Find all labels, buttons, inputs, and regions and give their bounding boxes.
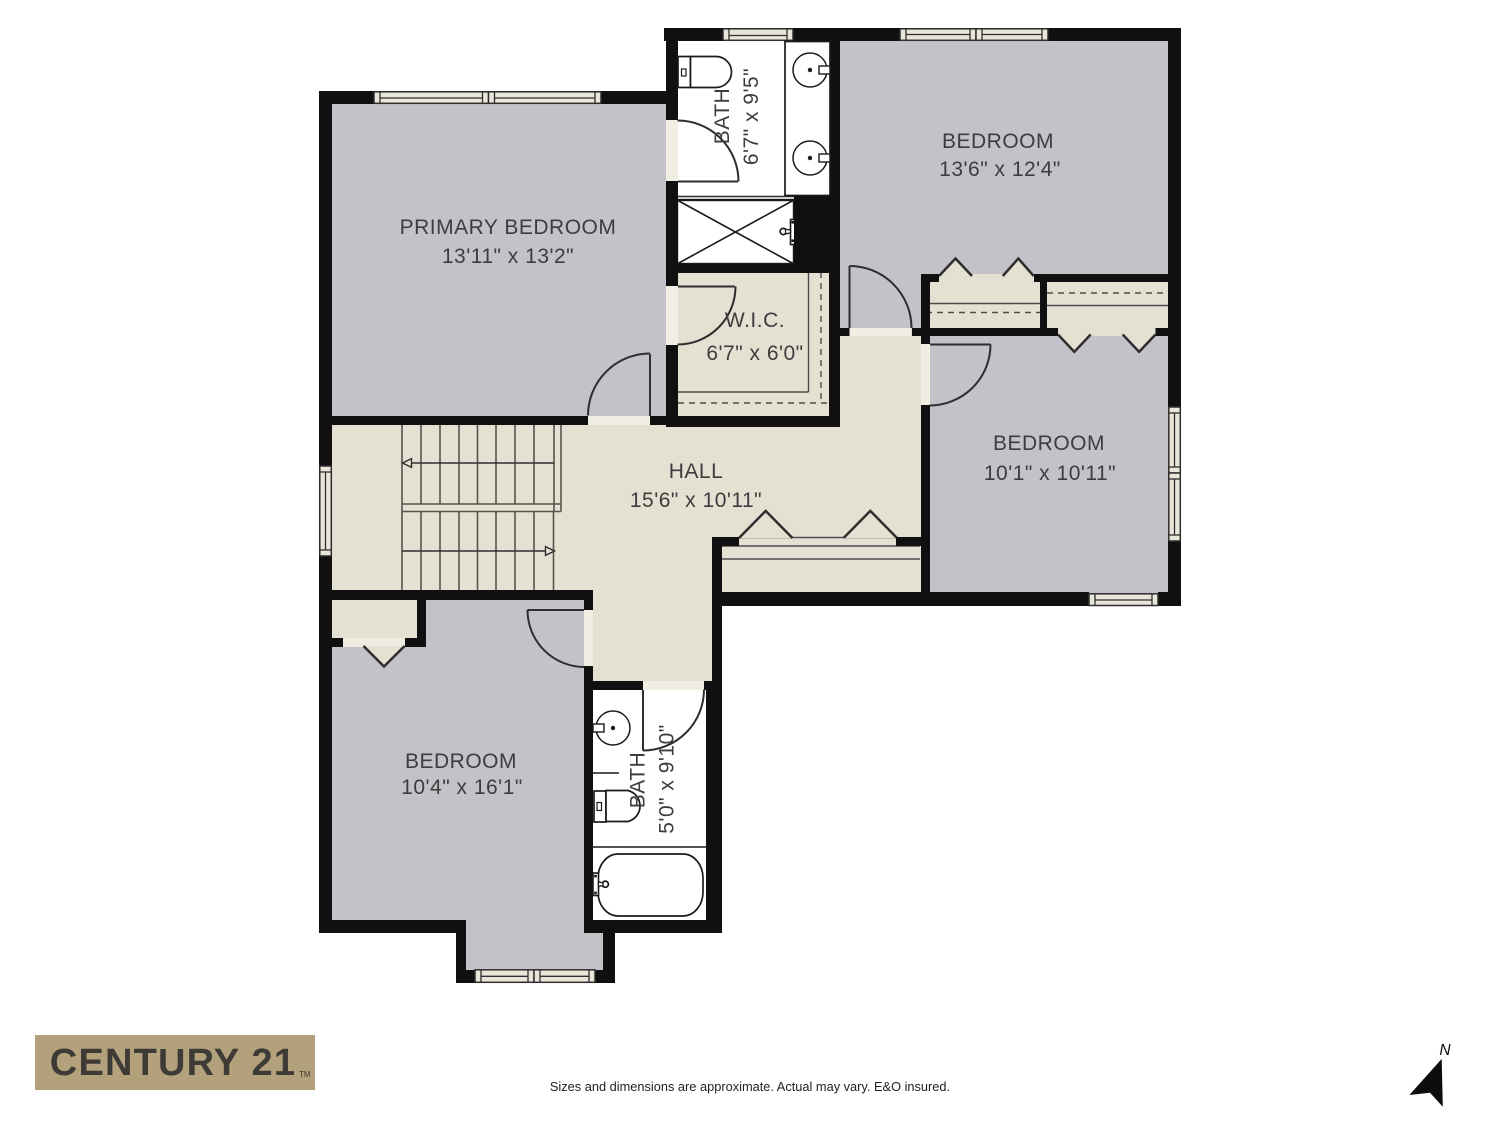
svg-text:10'1" x 10'11": 10'1" x 10'11": [984, 462, 1116, 485]
svg-text:13'6" x 12'4": 13'6" x 12'4": [939, 158, 1061, 181]
svg-text:CENTURY 21: CENTURY 21: [50, 1042, 296, 1084]
svg-text:10'4" x 16'1": 10'4" x 16'1": [401, 776, 523, 799]
svg-text:BATH: BATH: [711, 88, 734, 144]
svg-text:BATH: BATH: [627, 752, 650, 808]
svg-text:BEDROOM: BEDROOM: [942, 130, 1054, 153]
svg-text:6'7" x 9'5": 6'7" x 9'5": [740, 68, 763, 165]
svg-text:HALL: HALL: [669, 460, 724, 483]
svg-text:W.I.C.: W.I.C.: [725, 309, 785, 332]
svg-text:6'7" x 6'0": 6'7" x 6'0": [706, 342, 803, 365]
svg-text:5'0" x 9'10": 5'0" x 9'10": [656, 724, 679, 834]
svg-text:Sizes and dimensions are appro: Sizes and dimensions are approximate. Ac…: [550, 1079, 950, 1094]
svg-text:15'6" x 10'11": 15'6" x 10'11": [630, 489, 762, 512]
svg-text:13'11" x 13'2": 13'11" x 13'2": [442, 245, 574, 268]
svg-text:BEDROOM: BEDROOM: [405, 750, 517, 773]
svg-text:BEDROOM: BEDROOM: [993, 432, 1105, 455]
svg-text:TM: TM: [299, 1070, 311, 1079]
svg-text:N: N: [1439, 1042, 1451, 1059]
svg-text:PRIMARY BEDROOM: PRIMARY BEDROOM: [400, 216, 617, 239]
